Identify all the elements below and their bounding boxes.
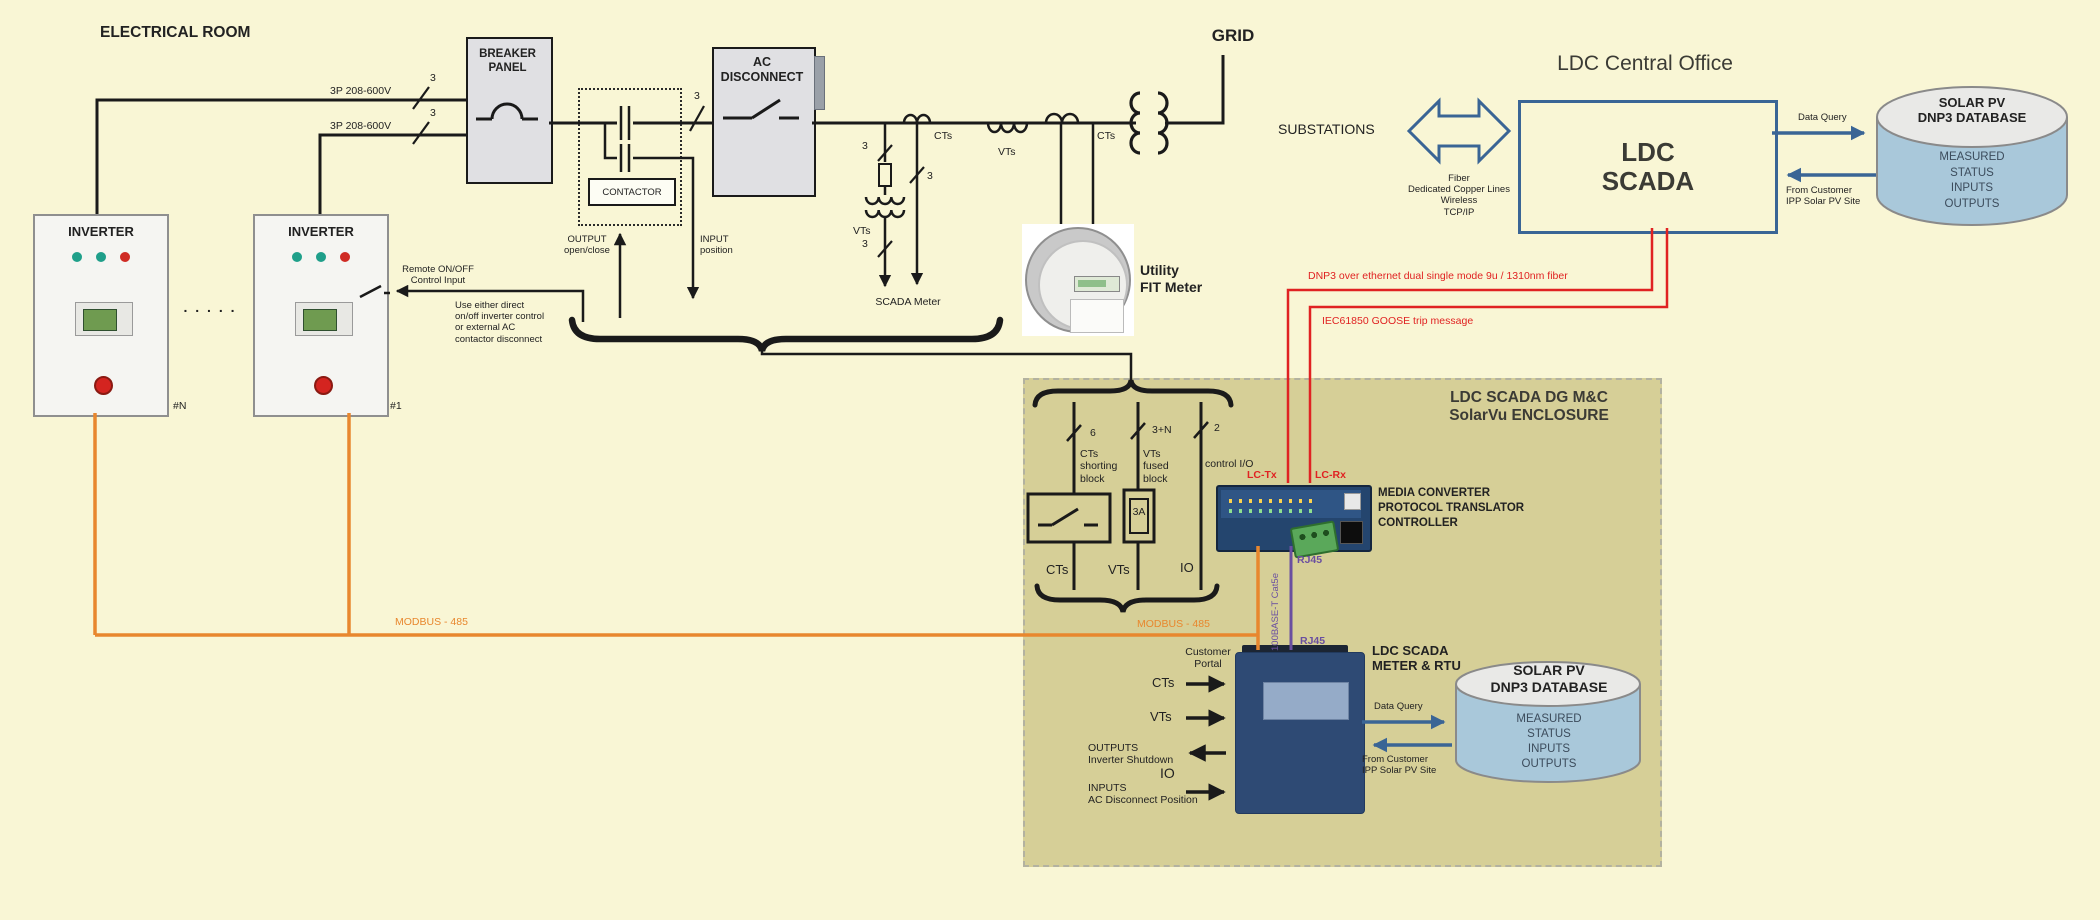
- rtu-io-arrows: [1186, 684, 1226, 792]
- scada-branch-phase1: 3: [862, 140, 868, 152]
- modbus-label-left: MODBUS - 485: [395, 616, 468, 628]
- scada-branch-phase3: 3: [927, 170, 933, 182]
- meter-ring: [1025, 227, 1131, 333]
- vts-fused-block-label: VTsfusedblock: [1143, 448, 1169, 485]
- electrical-room-title: ELECTRICAL ROOM: [100, 24, 250, 42]
- scada-meter-label: SCADA Meter: [865, 296, 951, 308]
- vts-bottom-label: VTs: [1108, 562, 1130, 577]
- line-cts1-label: CTs: [934, 130, 952, 142]
- meter-rtu-title: LDC SCADAMETER & RTU: [1372, 643, 1461, 674]
- inverter-n-number: #N: [173, 400, 186, 412]
- substations-link-arrow: [1409, 101, 1509, 161]
- rj45-bottom-label: RJ45: [1300, 635, 1325, 647]
- breaker-panel-label: BREAKERPANEL: [468, 48, 547, 75]
- control-signal-arrows: [360, 158, 693, 322]
- data-query-top-label: Data Query: [1798, 112, 1847, 123]
- diagram-canvas: CONTACTOR LDC SCADA INVERTER INVERTER: [0, 0, 2100, 920]
- scada-branch-phase2: 3: [862, 238, 868, 250]
- line-cts2-label: CTs: [1097, 130, 1115, 142]
- utility-fit-meter-label: UtilityFIT Meter: [1140, 262, 1202, 295]
- cts-bottom-label: CTs: [1046, 562, 1068, 577]
- grid-label: GRID: [1200, 26, 1266, 46]
- substations-label: SUBSTATIONS: [1278, 121, 1375, 138]
- from-customer-bottom-label: From CustomerIPP Solar PV Site: [1362, 754, 1436, 776]
- rtu-cts-label: CTs: [1152, 675, 1174, 690]
- customer-portal-label: CustomerPortal: [1180, 646, 1236, 671]
- meter-digits: [1078, 280, 1106, 287]
- rtu-io-label: IO: [1160, 765, 1175, 782]
- feeder1-voltage-label: 3P 208-600V: [330, 85, 391, 97]
- cts-wire-count: 6: [1090, 427, 1096, 439]
- scada-meter-branch: [866, 123, 917, 286]
- output-open-close-label: OUTPUTopen/close: [556, 234, 618, 256]
- line-phase-count: 3: [694, 90, 700, 102]
- modbus-label-enclosure: MODBUS - 485: [1137, 618, 1210, 630]
- rtu-outputs-label: OUTPUTSInverter Shutdown: [1088, 742, 1173, 767]
- control-io-label: control I/O: [1205, 458, 1253, 470]
- remote-onoff-label: Remote ON/OFFControl Input: [394, 264, 482, 286]
- from-customer-top-label: From CustomerIPP Solar PV Site: [1786, 185, 1860, 207]
- phase-slashes: [413, 87, 924, 257]
- rj45-top-label: RJ45: [1297, 554, 1322, 566]
- lc-rx-label: LC-Rx: [1315, 469, 1346, 481]
- cat5e-label: 100BASE-T Cat5e: [1270, 551, 1281, 651]
- db-bottom-title: SOLAR PVDNP3 DATABASE: [1458, 662, 1640, 695]
- enclosure-title: LDC SCADA DG M&CSolarVu ENCLOSURE: [1400, 389, 1658, 426]
- input-position-label: INPUTposition: [700, 234, 733, 256]
- io-bottom-label: IO: [1180, 560, 1194, 575]
- meter-nameplate: [1070, 299, 1124, 333]
- ac-power-wires: [97, 55, 1223, 214]
- feeder2-voltage-label: 3P 208-600V: [330, 120, 391, 132]
- vts-wire-count: 3+N: [1152, 424, 1172, 436]
- meter-lcd: [1074, 276, 1120, 292]
- scada-branch-vts-label: VTs: [853, 225, 871, 237]
- feeder1-phase-count: 3: [430, 72, 436, 84]
- ac-disconnect-label: ACDISCONNECT: [714, 55, 810, 85]
- more-inverters-dots: . . . . .: [168, 299, 252, 316]
- dnp3-fiber-label: DNP3 over ethernet dual single mode 9u /…: [1308, 270, 1568, 282]
- meter-face: [1038, 240, 1128, 330]
- utility-fit-meter-photo: [1022, 224, 1134, 336]
- goose-trip-label: IEC61850 GOOSE trip message: [1322, 315, 1473, 327]
- wiring-layer: [0, 0, 2100, 920]
- gathering-braces: [572, 320, 1231, 612]
- db-top-rows: MEASUREDSTATUS INPUTSOUTPUTS: [1879, 150, 2065, 212]
- lc-tx-label: LC-Tx: [1247, 469, 1277, 481]
- cts-shorting-block-label: CTsshortingblock: [1080, 448, 1117, 485]
- db-top-title: SOLAR PVDNP3 DATABASE: [1879, 95, 2065, 126]
- feeder2-phase-count: 3: [430, 107, 436, 119]
- db-bottom-rows: MEASUREDSTATUS INPUTSOUTPUTS: [1458, 712, 1640, 772]
- comm-links-label: FiberDedicated Copper Lines WirelessTCP/…: [1395, 173, 1523, 218]
- inverter-1-number: #1: [390, 400, 402, 412]
- grid-transformer-symbol: [1131, 93, 1167, 153]
- contactor-contacts: [605, 106, 629, 172]
- data-query-bottom-label: Data Query: [1374, 701, 1423, 712]
- ldc-central-office-title: LDC Central Office: [1518, 52, 1772, 77]
- control-note: Use either directon/off inverter control…: [455, 300, 544, 345]
- rtu-vts-label: VTs: [1150, 709, 1172, 724]
- line-vts-label: VTs: [998, 146, 1016, 158]
- io-wire-count: 2: [1214, 422, 1220, 434]
- fuse-rating-label: 3A: [1128, 506, 1150, 518]
- rtu-inputs-label: INPUTSAC Disconnect Position: [1088, 782, 1198, 807]
- media-converter-label: MEDIA CONVERTERPROTOCOL TRANSLATORCONTRO…: [1378, 486, 1524, 531]
- cts-shorting-block-symbol: [1028, 494, 1110, 542]
- dnp3-fiber-lines: [1288, 228, 1667, 483]
